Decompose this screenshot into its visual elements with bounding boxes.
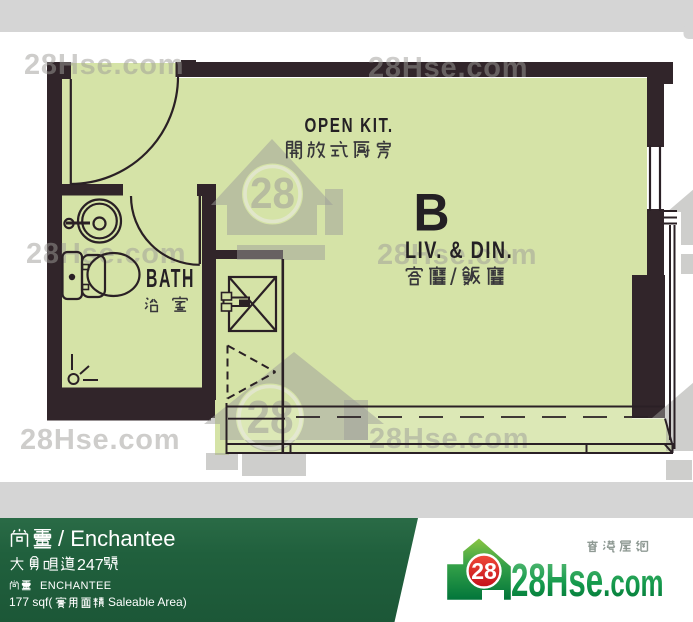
svg-text:LIV. & DIN.: LIV. & DIN. [405,237,513,264]
svg-text:177 sqf(: 177 sqf( [9,595,52,609]
svg-text:B: B [414,183,450,241]
svg-text:28Hse.com: 28Hse.com [24,49,184,81]
svg-text:ENCHANTEE: ENCHANTEE [40,580,111,592]
svg-text:28: 28 [250,168,295,217]
svg-text:28Hse.com: 28Hse.com [368,52,528,84]
svg-text:28Hse.com: 28Hse.com [511,555,663,606]
svg-text:/: / [450,264,457,291]
svg-text:28Hse.com: 28Hse.com [369,423,529,455]
svg-text:OPEN KIT.: OPEN KIT. [305,114,394,137]
svg-text:28Hse.com: 28Hse.com [20,424,180,456]
svg-text:BATH: BATH [146,265,195,293]
svg-text:247: 247 [77,557,104,574]
svg-text:28: 28 [471,558,497,584]
svg-text:Saleable Area): Saleable Area) [108,595,187,609]
svg-text:/ Enchantee: / Enchantee [58,526,175,551]
